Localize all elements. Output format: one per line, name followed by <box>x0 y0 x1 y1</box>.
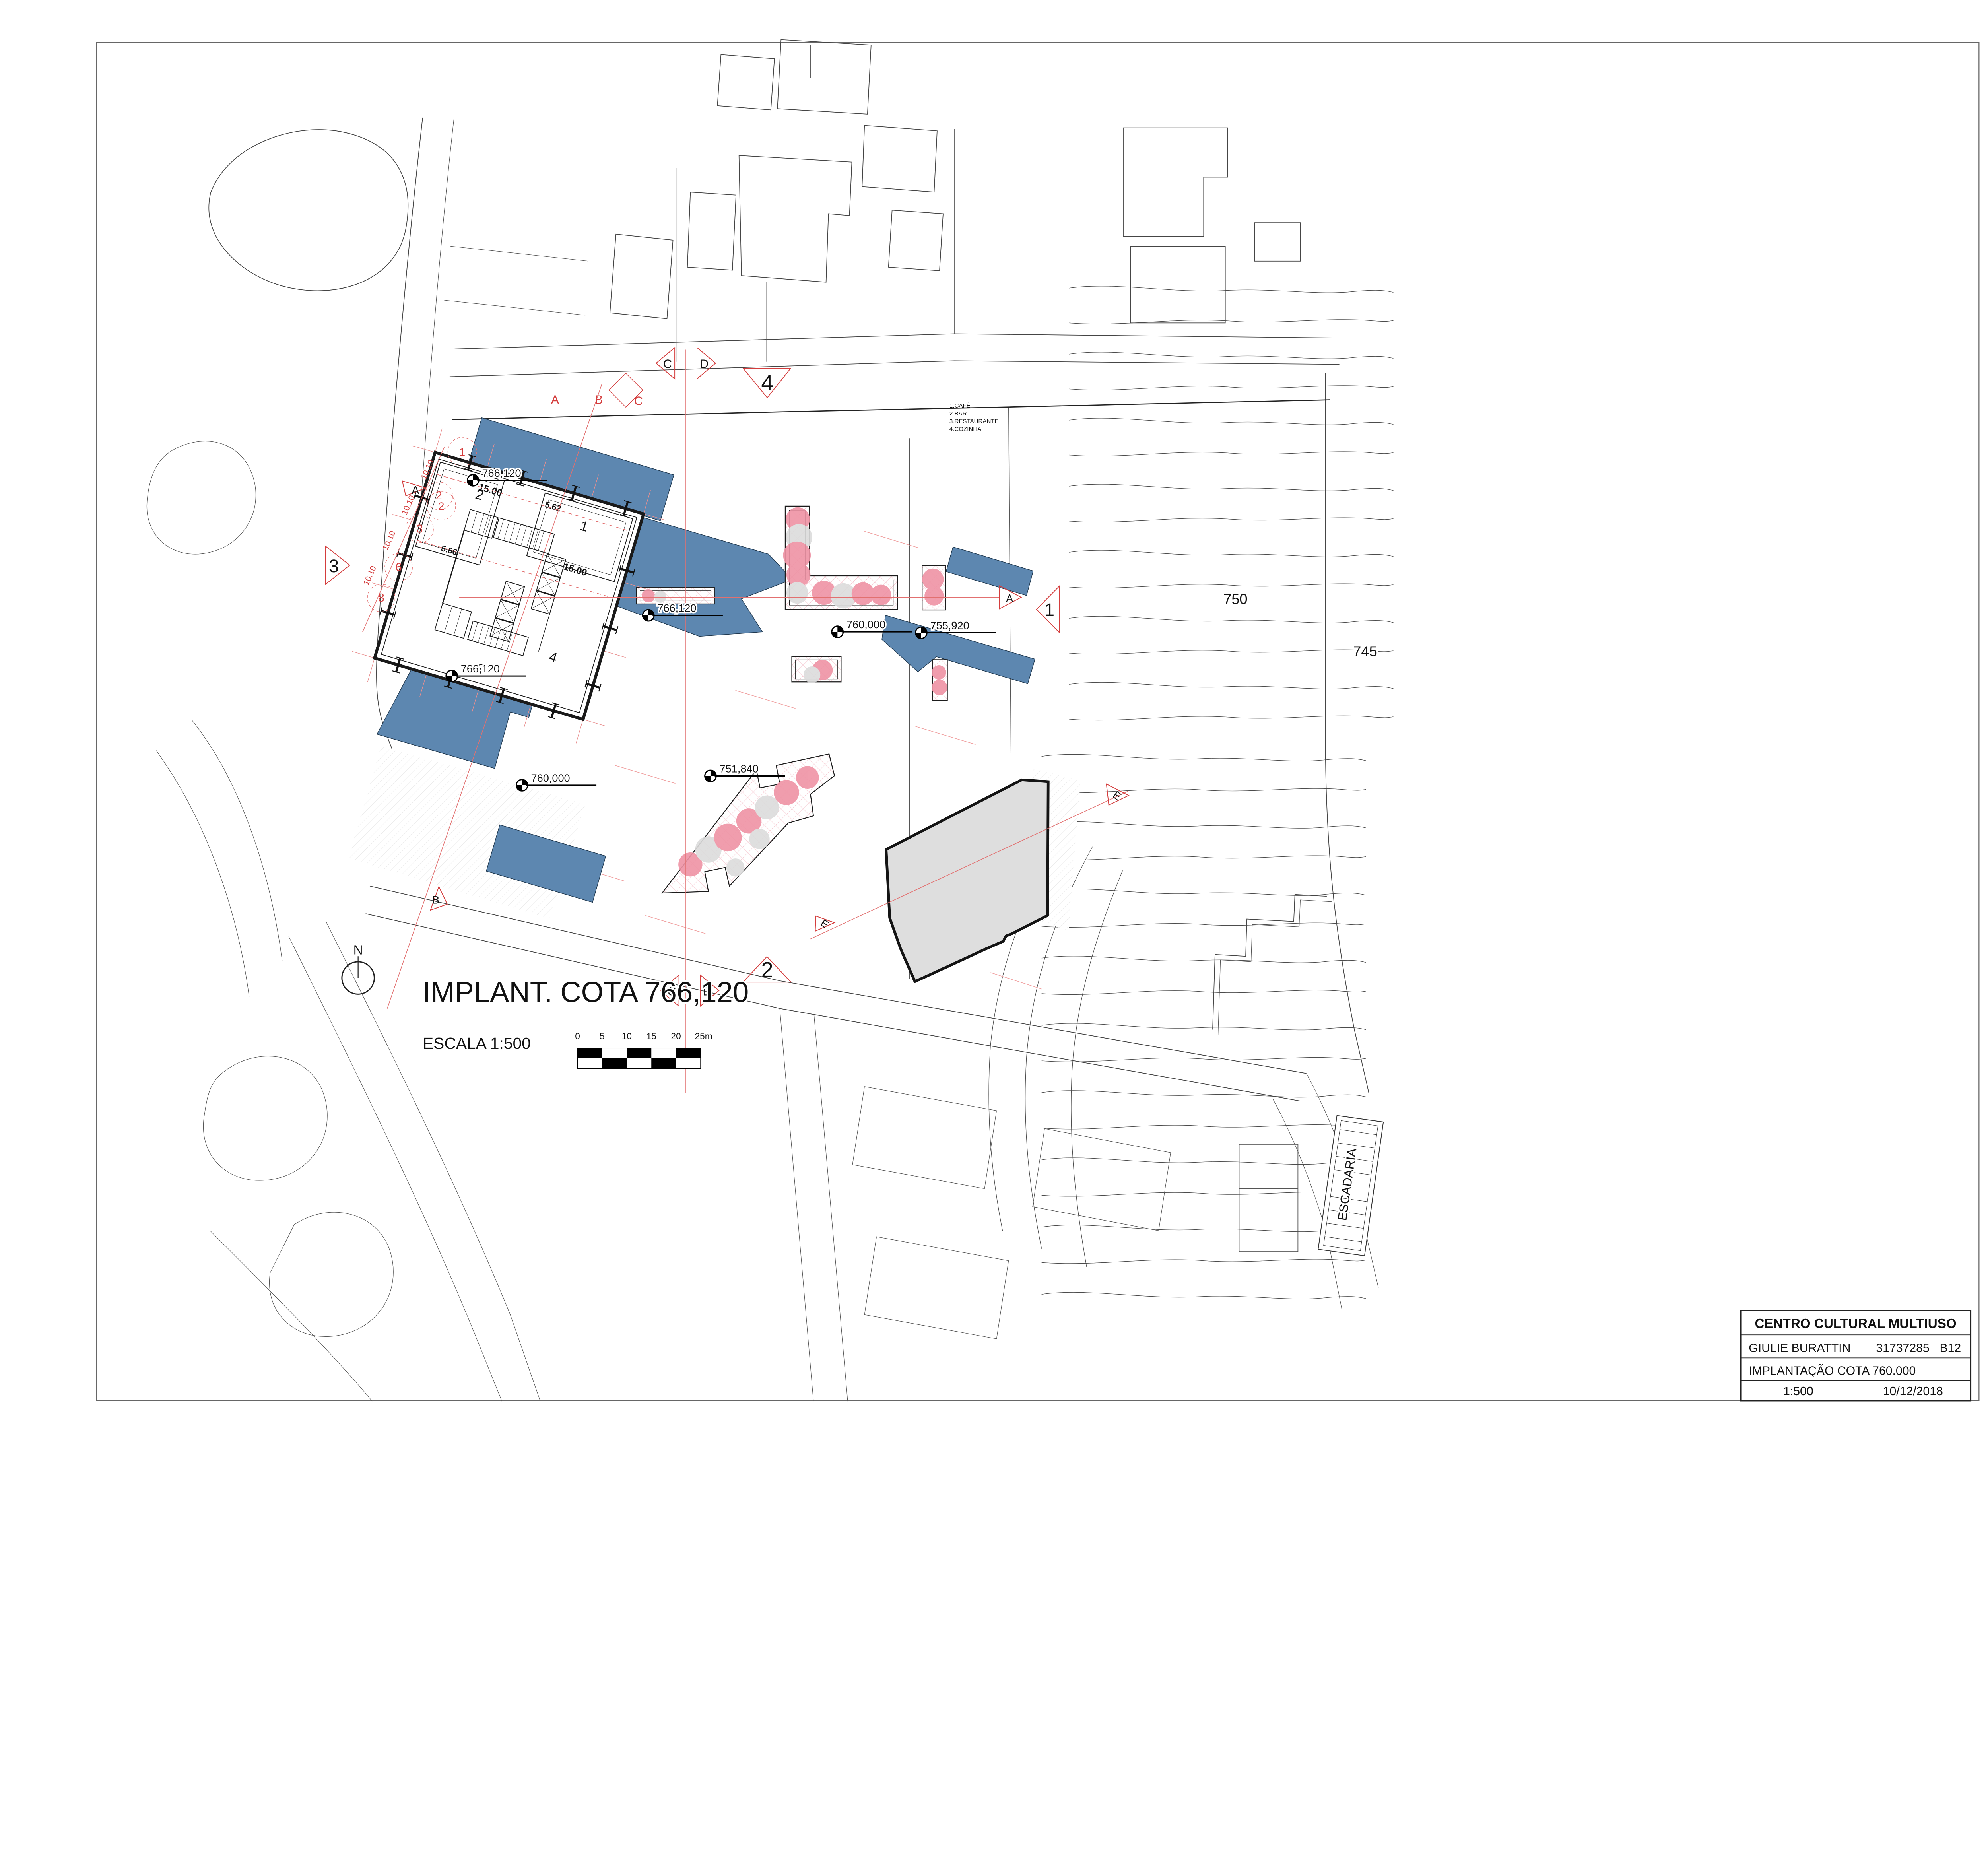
title-block: CENTRO CULTURAL MULTIUSO GIULIE BURATTIN… <box>1741 1311 1971 1400</box>
grid-number-6: 6 <box>396 561 402 574</box>
spot-elevation-766-3: 766,120 <box>461 662 500 675</box>
plan-scale: ESCALA 1:500 <box>423 1034 531 1052</box>
contour-label-750: 750 <box>1223 591 1247 607</box>
scale-tick-5: 5 <box>600 1031 605 1041</box>
author-name: GIULIE BURATTIN <box>1749 1342 1850 1355</box>
project-title: CENTRO CULTURAL MULTIUSO <box>1755 1316 1956 1331</box>
axis-letter-b: B <box>595 393 603 406</box>
spot-elevation-760-2: 760,000 <box>846 618 885 631</box>
spot-elevation-755: 755,920 <box>930 619 969 631</box>
axis-letter-c: C <box>634 394 643 408</box>
spot-elevation-760-1: 760,000 <box>531 772 570 784</box>
grid-dim-3: 10.10 <box>381 530 398 552</box>
existing-building <box>886 780 1048 981</box>
scale-tick-0: 0 <box>575 1031 580 1041</box>
neighbour-buildings <box>147 40 1332 1401</box>
site-boundary <box>452 400 1330 420</box>
legend-item-cozinha: 4.COZINHA <box>949 426 982 433</box>
section-label-2: 2 <box>761 958 773 982</box>
spot-elevation-751: 751,840 <box>720 762 759 775</box>
spot-elevation-766-1: 766,120 <box>482 467 521 479</box>
site-plan-sheet: 2 1 3 4 15.00 5.62 5.66 15.00 C D C D 4 … <box>0 0 1988 1404</box>
section-label-a-east: A <box>1006 593 1013 604</box>
scale-tick-10: 10 <box>622 1031 632 1041</box>
scale-tick-20: 20 <box>671 1031 681 1041</box>
legend-item-restaurante: 3.RESTAURANTE <box>949 418 999 425</box>
canopy-entry-arrow <box>616 510 792 636</box>
sheet-scale: 1:500 <box>1783 1385 1813 1398</box>
section-label-d-top: D <box>700 358 709 371</box>
grid-bubble-1: 1 <box>459 446 465 458</box>
grid-number-8: 8 <box>378 592 384 604</box>
grid-bubble-2: 2 <box>438 500 444 512</box>
contour-label-745: 745 <box>1353 643 1377 659</box>
section-label-1: 1 <box>1044 600 1054 620</box>
plan-caption: IMPLANT. COTA 766,120 ESCALA 1:500 0 5 1… <box>423 976 749 1069</box>
section-label-b: B <box>432 893 439 906</box>
sheet-name: IMPLANTAÇÃO COTA 760.000 <box>1749 1364 1916 1378</box>
legend-item-cafe: 1.CAFÉ <box>949 402 971 409</box>
sheet-border <box>96 42 1979 1400</box>
section-label-c-top: C <box>663 358 672 371</box>
section-label-4: 4 <box>761 371 773 395</box>
grid-dim-4: 10.10 <box>362 565 378 587</box>
section-label-3: 3 <box>329 556 339 576</box>
axis-letter-a: A <box>551 393 559 406</box>
grid-dim-2: 10.10 <box>400 494 417 516</box>
graphic-scale-bar: 0 5 10 15 20 25m <box>575 1031 712 1069</box>
sheet-date: 10/12/2018 <box>1883 1385 1943 1398</box>
scale-tick-15: 15 <box>646 1031 656 1041</box>
class-code: B12 <box>1939 1342 1961 1355</box>
grid-number-3: 3 <box>416 522 423 535</box>
spot-elevation-766-2: 766,120 <box>657 602 696 614</box>
street-network <box>289 118 1378 1401</box>
canopy-east-wedge-1 <box>946 547 1033 596</box>
plan-title: IMPLANT. COTA 766,120 <box>423 976 749 1008</box>
legend-item-bar: 2.BAR <box>949 410 967 417</box>
scale-tick-25m: 25m <box>695 1031 712 1041</box>
student-id: 31737285 <box>1876 1342 1929 1355</box>
north-label: N <box>353 943 363 958</box>
escadaria-stair: ESCADARIA <box>1318 1116 1383 1256</box>
grid-label-a: A <box>412 484 419 497</box>
